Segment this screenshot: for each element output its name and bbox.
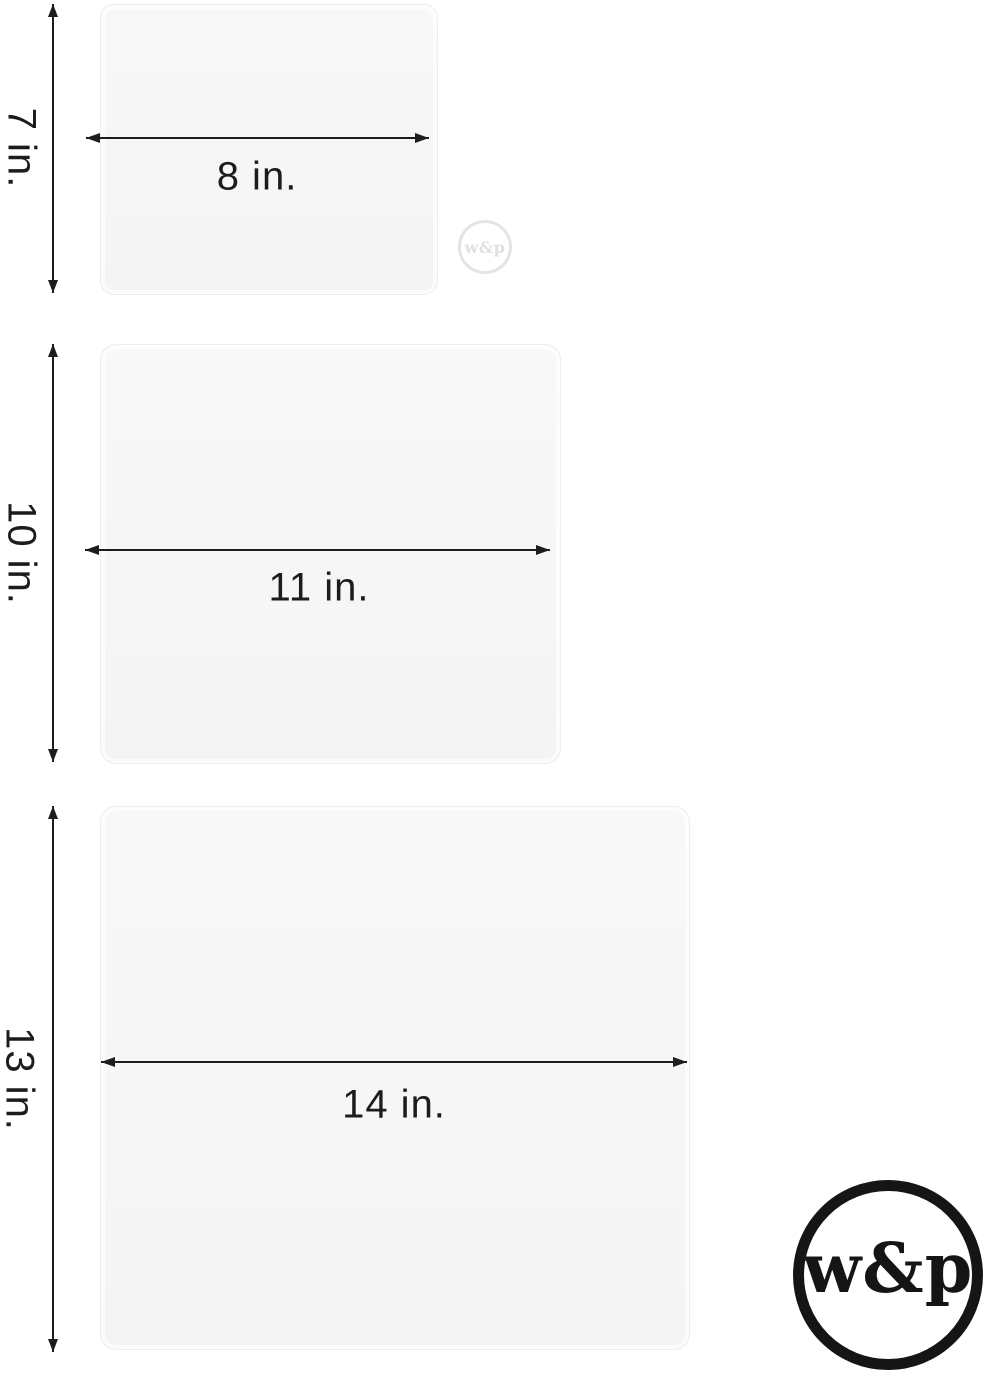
height-dimension-label-small: 7 in. — [0, 108, 44, 189]
product-dimension-diagram: w&p 7 in. 8 in. w&p 10 in. 11 in. w&p 13… — [0, 0, 996, 1383]
mat-small: w&p — [100, 4, 438, 295]
embossed-brand-logo-icon: w&p — [458, 220, 512, 274]
width-dimension-line-small — [86, 137, 429, 139]
width-dimension-label-small: 8 in. — [217, 155, 298, 200]
height-dimension-line-medium — [52, 344, 54, 762]
height-dimension-label-medium: 10 in. — [0, 501, 44, 605]
brand-logo-wp-icon: w&p — [793, 1180, 983, 1370]
width-dimension-line-medium — [85, 549, 550, 551]
mat-large: w&p — [100, 806, 690, 1350]
height-dimension-line-small — [52, 4, 54, 293]
brand-logo-text: w&p — [803, 1229, 973, 1309]
width-dimension-line-large — [101, 1061, 687, 1063]
height-dimension-label-large: 13 in. — [0, 1027, 42, 1131]
embossed-logo-text: w&p — [465, 238, 506, 257]
mat-medium: w&p — [100, 344, 561, 764]
width-dimension-label-large: 14 in. — [342, 1083, 446, 1128]
height-dimension-line-large — [52, 806, 54, 1352]
width-dimension-label-medium: 11 in. — [269, 566, 370, 611]
